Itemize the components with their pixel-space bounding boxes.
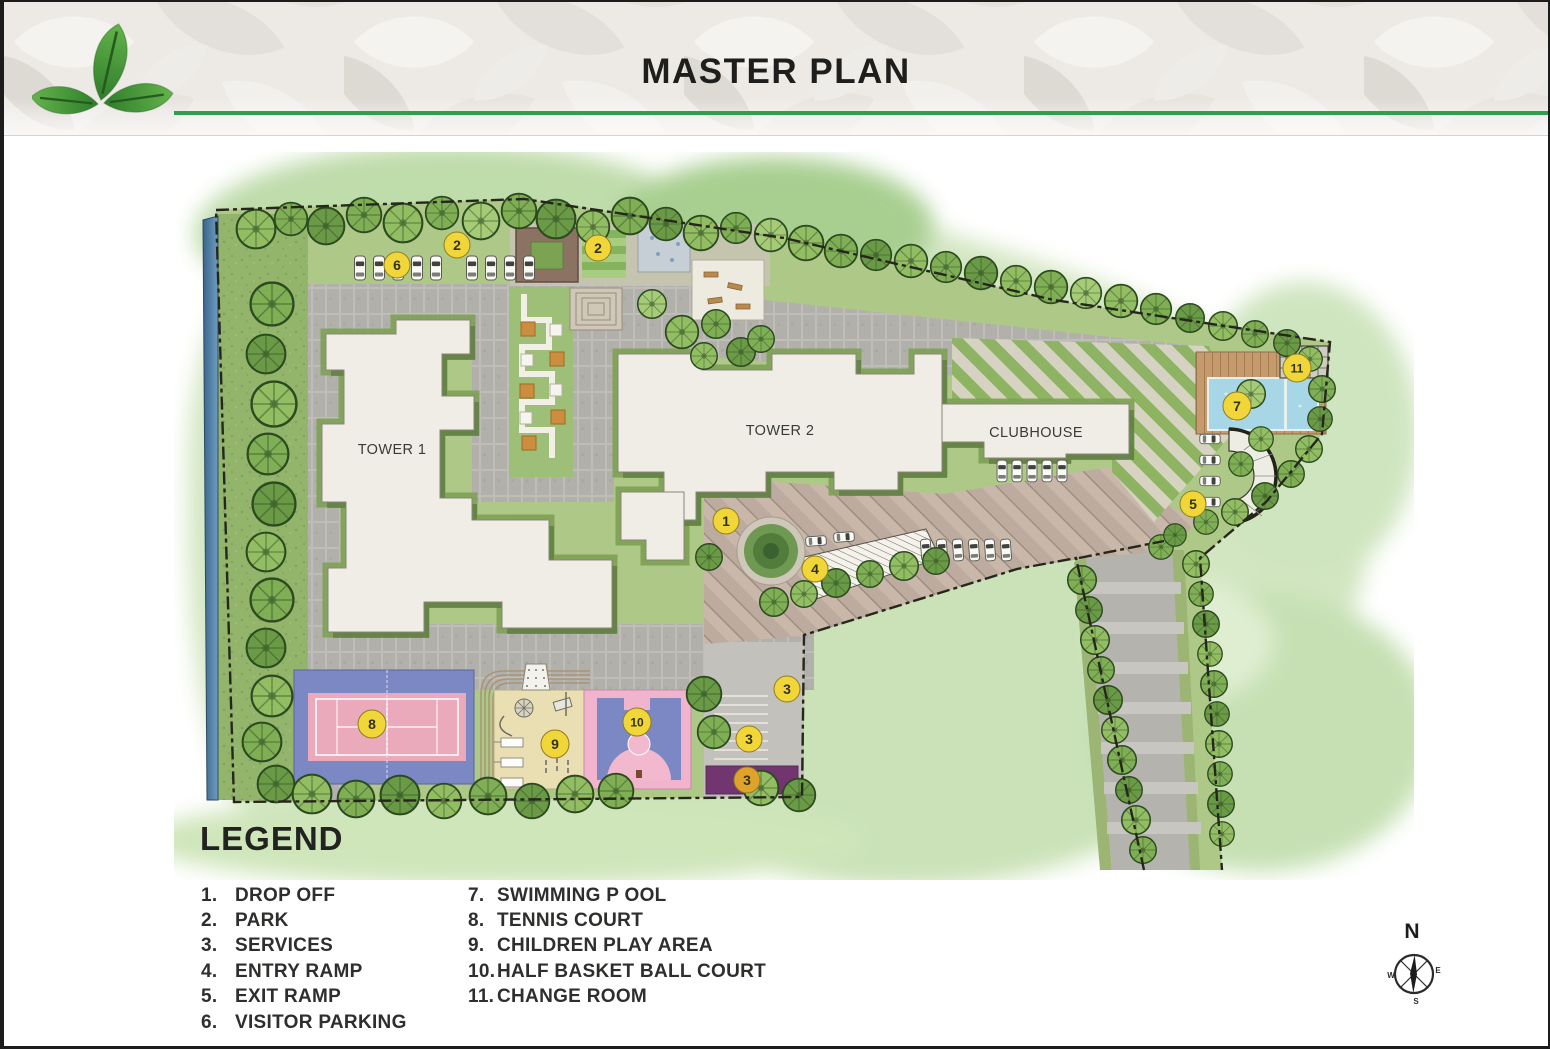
- svg-text:6: 6: [393, 257, 401, 273]
- legend-item-half-basket-ball-court: 10.HALF BASKET BALL COURT: [468, 959, 766, 984]
- courtyard-garden: [509, 287, 573, 477]
- site-plan: TOWER 1 TOWER 2 CLUBHOUSE: [174, 152, 1414, 880]
- header-divider: [174, 111, 1548, 115]
- half-basketball-court: [584, 690, 691, 789]
- legend-item-swimming-pool: 7.SWIMMING P OOL: [468, 883, 766, 908]
- legend-column-1: 1.DROP OFF 2.PARK 3.SERVICES 4.ENTRY RAM…: [201, 883, 407, 1035]
- legend-item-children-play-area: 9.CHILDREN PLAY AREA: [468, 934, 766, 959]
- legend-item-change-room: 11.CHANGE ROOM: [468, 985, 766, 1010]
- compass-north-label: N: [1404, 920, 1419, 943]
- svg-text:4: 4: [811, 561, 819, 577]
- header: MASTER PLAN: [4, 2, 1548, 136]
- svg-text:9: 9: [551, 736, 559, 752]
- compass-west-label: W: [1387, 971, 1395, 980]
- compass-east-label: E: [1435, 966, 1441, 975]
- legend-item-entry-ramp: 4.ENTRY RAMP: [201, 959, 407, 984]
- marker-park-b: 2: [585, 235, 611, 261]
- marker-tennis-court: 8: [358, 710, 386, 738]
- marker-change-room: 11: [1283, 354, 1311, 382]
- legend-item-exit-ramp: 5.EXIT RAMP: [201, 985, 407, 1010]
- marker-drop-off: 1: [713, 508, 739, 534]
- tower-2-label: TOWER 2: [746, 423, 815, 439]
- svg-text:11: 11: [1291, 362, 1304, 376]
- svg-text:3: 3: [745, 731, 753, 747]
- legend-item-tennis-court: 8.TENNIS COURT: [468, 908, 766, 933]
- legend-item-visitor-parking: 6.VISITOR PARKING: [201, 1010, 407, 1035]
- svg-text:7: 7: [1233, 398, 1241, 414]
- marker-entry-ramp: 4: [802, 556, 828, 582]
- legend-column-2: 7.SWIMMING P OOL 8.TENNIS COURT 9.CHILDR…: [468, 883, 766, 1010]
- marker-exit-ramp: 5: [1180, 491, 1206, 517]
- compass-rose-icon: N W E S: [1362, 912, 1472, 1017]
- marker-services-b: 3: [736, 726, 762, 752]
- marker-visitor-parking: 6: [384, 252, 410, 278]
- svg-text:8: 8: [368, 716, 376, 732]
- svg-text:2: 2: [453, 237, 461, 253]
- page-title: MASTER PLAN: [4, 52, 1548, 92]
- legend-item-park: 2.PARK: [201, 908, 407, 933]
- svg-text:1: 1: [722, 513, 730, 529]
- clubhouse-label: CLUBHOUSE: [989, 425, 1083, 441]
- marker-swimming-pool: 7: [1223, 392, 1251, 420]
- svg-text:10: 10: [630, 716, 644, 730]
- legend-item-services: 3.SERVICES: [201, 934, 407, 959]
- marker-half-basketball-court: 10: [623, 708, 651, 736]
- legend-heading: LEGEND: [200, 820, 344, 858]
- marker-services-c: 3: [734, 767, 760, 793]
- svg-text:2: 2: [594, 240, 602, 256]
- svg-text:5: 5: [1189, 496, 1197, 512]
- marker-services-a: 3: [774, 676, 800, 702]
- drop-off-circle: [737, 517, 805, 585]
- marker-children-play-area: 9: [541, 730, 569, 758]
- tower-1-label: TOWER 1: [358, 442, 427, 458]
- master-plan-page: MASTER PLAN: [0, 0, 1550, 1049]
- compass-south-label: S: [1413, 997, 1419, 1006]
- svg-text:3: 3: [743, 772, 751, 788]
- marker-park-a: 2: [444, 232, 470, 258]
- legend-item-drop-off: 1.DROP OFF: [201, 883, 407, 908]
- svg-text:3: 3: [783, 681, 791, 697]
